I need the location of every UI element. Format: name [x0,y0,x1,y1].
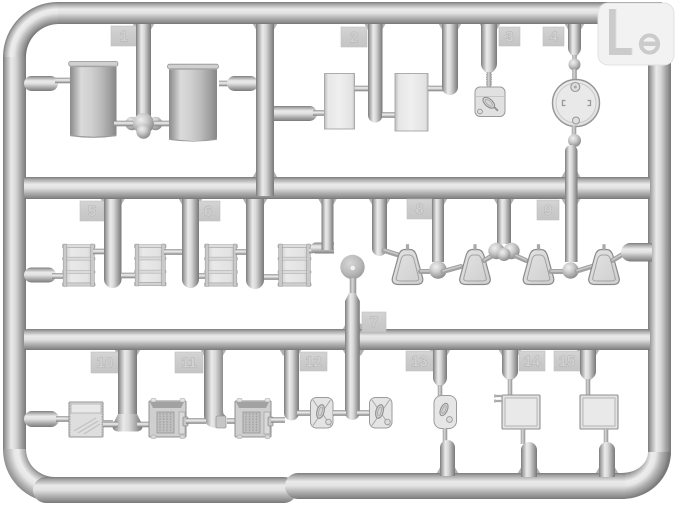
svg-text:2: 2 [350,30,358,46]
svg-text:6: 6 [204,204,212,220]
svg-text:9: 9 [544,203,552,219]
svg-text:7: 7 [370,315,378,331]
svg-text:8: 8 [415,202,423,218]
svg-text:13: 13 [411,354,427,370]
svg-text:10: 10 [97,356,113,372]
svg-text:4: 4 [549,30,557,46]
svg-text:11: 11 [181,356,196,372]
svg-text:15: 15 [559,354,575,370]
svg-text:3: 3 [505,30,513,46]
svg-text:1: 1 [120,29,128,45]
svg-text:5: 5 [88,204,96,220]
svg-text:12: 12 [305,355,321,371]
svg-text:14: 14 [524,354,540,370]
